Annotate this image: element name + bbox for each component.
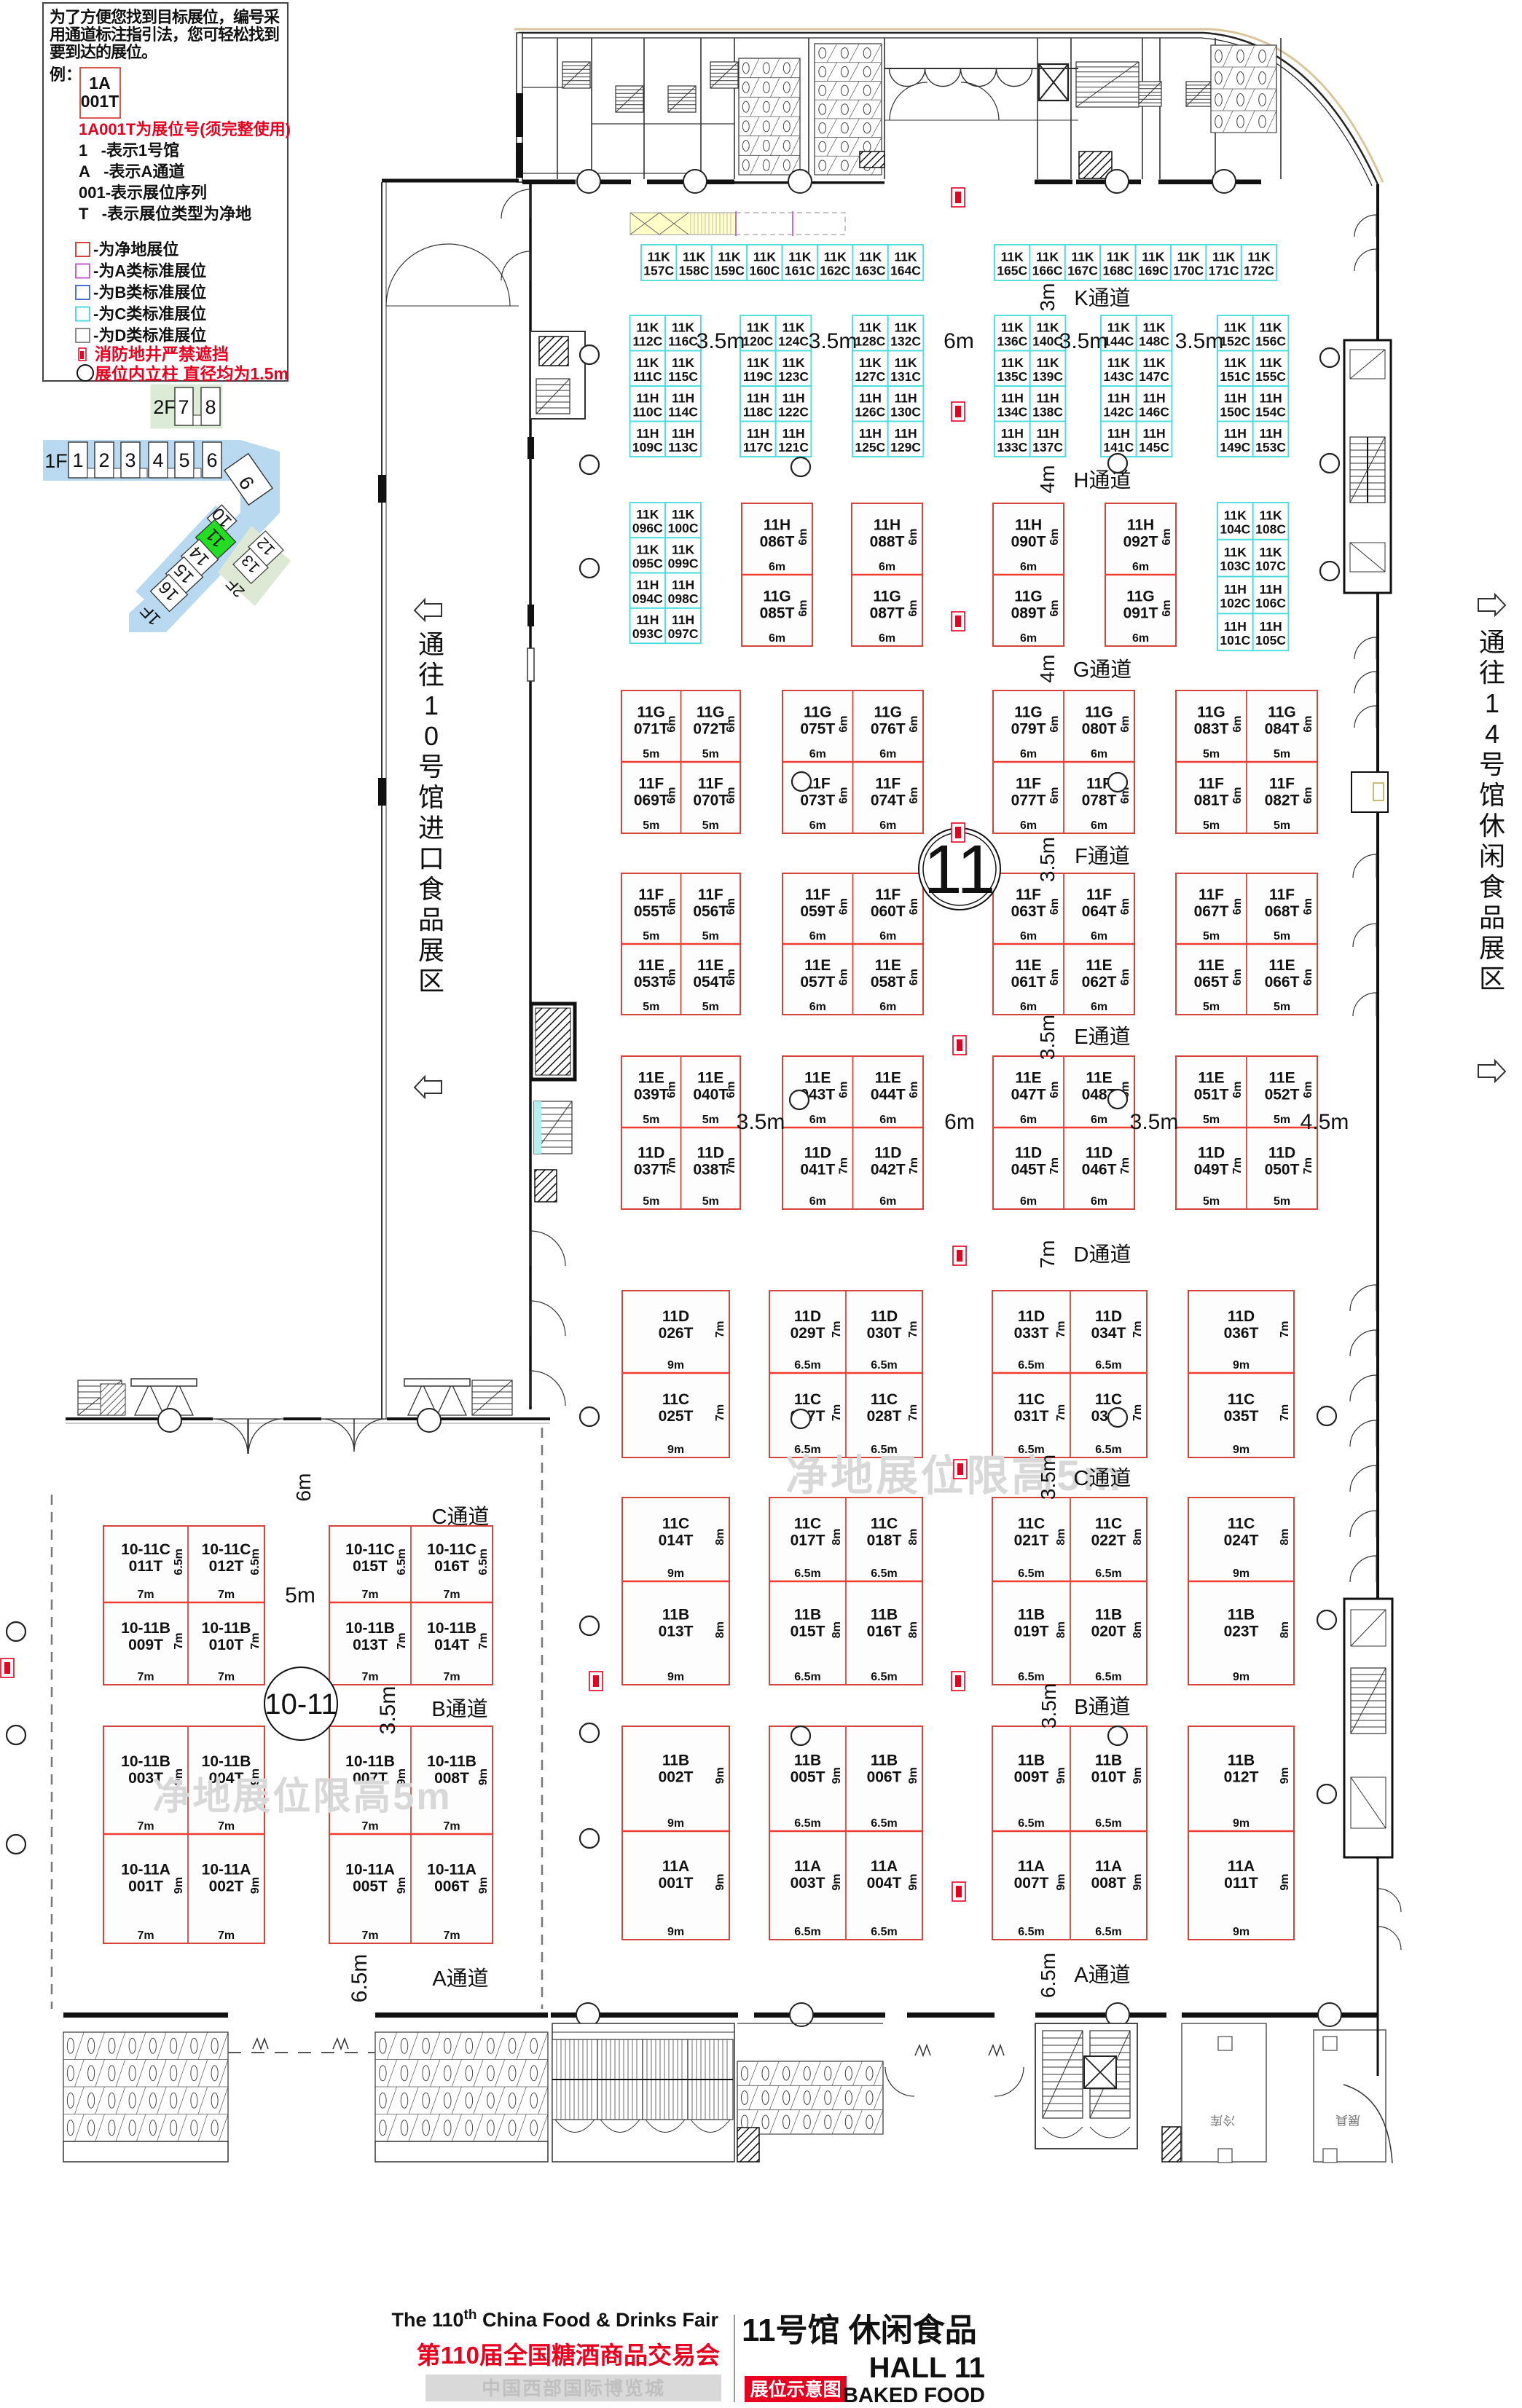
svg-text:11K132C: 11K132C: [890, 320, 921, 348]
svg-text:6m: 6m: [1119, 969, 1131, 985]
svg-text:11H126C: 11H126C: [855, 390, 885, 419]
svg-text:6m: 6m: [879, 930, 896, 943]
svg-text:7m: 7m: [907, 1404, 919, 1421]
svg-text:5m: 5m: [702, 748, 719, 760]
svg-text:11E066T: 11E066T: [1265, 957, 1300, 991]
svg-text:6m: 6m: [908, 715, 920, 732]
svg-text:11F082T: 11F082T: [1265, 775, 1300, 808]
svg-text:11K143C: 11K143C: [1103, 355, 1134, 384]
svg-text:6m: 6m: [1091, 748, 1107, 760]
svg-text:6m: 6m: [1048, 969, 1061, 985]
svg-text:11D036T: 11D036T: [1224, 1308, 1259, 1342]
svg-text:6m: 6m: [908, 898, 920, 915]
svg-text:-为D类标准展位: -为D类标准展位: [93, 326, 206, 345]
svg-text:10-11C015T: 10-11C015T: [345, 1541, 395, 1575]
svg-text:7m: 7m: [838, 1157, 850, 1174]
svg-text:5m: 5m: [643, 1001, 659, 1013]
svg-text:11F063T: 11F063T: [1011, 886, 1046, 920]
svg-text:5m: 5m: [1203, 819, 1220, 832]
svg-text:6m: 6m: [879, 561, 895, 573]
svg-text:11K111C: 11K111C: [633, 355, 662, 384]
svg-text:11K103C: 11K103C: [1220, 545, 1250, 573]
svg-text:11E062T: 11E062T: [1082, 957, 1117, 991]
svg-text:11K123C: 11K123C: [778, 355, 809, 384]
svg-text:7m: 7m: [396, 1633, 408, 1650]
svg-text:6m: 6m: [1048, 1081, 1061, 1098]
svg-text:7m: 7m: [1279, 1321, 1291, 1338]
svg-text:11D034T: 11D034T: [1091, 1308, 1126, 1342]
svg-text:6m: 6m: [1161, 528, 1173, 545]
svg-text:11K163C: 11K163C: [855, 250, 886, 278]
svg-text:5m: 5m: [1274, 748, 1290, 760]
svg-text:11K158C: 11K158C: [679, 250, 710, 278]
svg-text:6.5m: 6.5m: [871, 1567, 897, 1580]
svg-text:10-11A006T: 10-11A006T: [427, 1862, 476, 1895]
svg-text:11B010T: 11B010T: [1091, 1752, 1126, 1785]
svg-text:5m: 5m: [1274, 1001, 1290, 1013]
svg-text:4m: 4m: [1036, 655, 1059, 683]
svg-text:11K136C: 11K136C: [997, 320, 1027, 348]
svg-text:10-11C012T: 10-11C012T: [202, 1541, 251, 1575]
svg-text:9m: 9m: [396, 1877, 408, 1894]
svg-text:11H130C: 11H130C: [890, 390, 921, 419]
svg-text:6: 6: [206, 449, 217, 471]
svg-text:7m: 7m: [1131, 1321, 1144, 1338]
svg-text:-为A类标准展位: -为A类标准展位: [93, 262, 206, 280]
svg-text:6.5m: 6.5m: [1018, 1817, 1044, 1830]
svg-text:11C022T: 11C022T: [1091, 1516, 1126, 1549]
svg-text:6m: 6m: [1091, 1001, 1107, 1013]
svg-text:6m: 6m: [1020, 1195, 1037, 1208]
svg-text:11H088T: 11H088T: [870, 516, 905, 550]
svg-text:9m: 9m: [1279, 1767, 1291, 1784]
svg-text:6m: 6m: [908, 1081, 920, 1098]
svg-text:3.5m: 3.5m: [809, 329, 858, 353]
svg-text:6m: 6m: [1048, 715, 1061, 732]
svg-text:11H098C: 11H098C: [668, 578, 699, 606]
svg-text:7m: 7m: [218, 1671, 235, 1683]
svg-text:4m: 4m: [1036, 465, 1059, 494]
svg-text:5m: 5m: [702, 930, 719, 943]
svg-text:9m: 9m: [477, 1768, 490, 1785]
svg-text:9m: 9m: [1233, 1671, 1250, 1683]
svg-text:6m: 6m: [907, 599, 919, 616]
svg-text:11F055T: 11F055T: [634, 886, 669, 920]
svg-text:5m: 5m: [643, 930, 659, 943]
svg-text:11K161C: 11K161C: [785, 250, 815, 278]
svg-text:C通道: C通道: [432, 1505, 490, 1529]
svg-text:6m: 6m: [666, 787, 678, 803]
svg-text:6.5m: 6.5m: [396, 1549, 408, 1575]
svg-text:11K165C: 11K165C: [997, 250, 1027, 278]
svg-text:11H137C: 11H137C: [1032, 426, 1063, 455]
svg-text:11H092T: 11H092T: [1123, 516, 1158, 550]
svg-text:7m: 7m: [1048, 1157, 1061, 1174]
svg-text:K通道: K通道: [1074, 286, 1130, 310]
svg-text:7m: 7m: [477, 1633, 490, 1650]
svg-text:11B005T: 11B005T: [791, 1752, 825, 1785]
svg-text:7m: 7m: [1279, 1404, 1291, 1421]
svg-text:7m: 7m: [714, 1321, 726, 1338]
svg-text:7m: 7m: [443, 1671, 460, 1683]
svg-text:中国西部国际博览城: 中国西部国际博览城: [482, 2377, 665, 2399]
svg-text:9m: 9m: [714, 1767, 726, 1784]
svg-text:11A004T: 11A004T: [867, 1858, 902, 1892]
svg-text:11K131C: 11K131C: [890, 355, 921, 384]
svg-text:6m: 6m: [1302, 1081, 1314, 1098]
svg-text:11A001T: 11A001T: [659, 1858, 694, 1892]
svg-text:11K157C: 11K157C: [643, 250, 674, 278]
svg-text:6m: 6m: [1302, 715, 1314, 732]
svg-text:5m: 5m: [643, 1195, 659, 1208]
svg-text:6m: 6m: [907, 528, 919, 545]
svg-text:C通道: C通道: [1074, 1466, 1131, 1490]
svg-text:11H138C: 11H138C: [1032, 390, 1063, 419]
svg-text:9m: 9m: [1233, 1926, 1250, 1938]
svg-text:11D026T: 11D026T: [659, 1308, 694, 1342]
svg-text:11B016T: 11B016T: [867, 1607, 902, 1640]
svg-text:11D042T: 11D042T: [871, 1144, 906, 1178]
svg-text:11K099C: 11K099C: [668, 542, 699, 570]
svg-text:11K167C: 11K167C: [1067, 250, 1098, 278]
svg-text:11B020T: 11B020T: [1091, 1607, 1126, 1640]
svg-text:4.5m: 4.5m: [1301, 1110, 1349, 1134]
svg-text:11K168C: 11K168C: [1102, 250, 1133, 278]
svg-text:6.5m: 6.5m: [1095, 1359, 1121, 1372]
svg-text:3.5m: 3.5m: [376, 1686, 400, 1735]
svg-text:6m: 6m: [1161, 599, 1173, 616]
svg-text:11E044T: 11E044T: [871, 1069, 906, 1103]
svg-text:11E065T: 11E065T: [1194, 957, 1229, 991]
svg-text:11H086T: 11H086T: [760, 516, 795, 550]
svg-text:11D038T: 11D038T: [693, 1144, 728, 1178]
svg-text:6.5m: 6.5m: [1095, 1926, 1121, 1938]
svg-text:11C021T: 11C021T: [1014, 1516, 1049, 1549]
svg-text:7m: 7m: [249, 1633, 262, 1650]
svg-text:5m: 5m: [702, 1195, 719, 1208]
svg-text:9m: 9m: [667, 1671, 684, 1683]
svg-text:5m: 5m: [1203, 1195, 1220, 1208]
svg-text:11K139C: 11K139C: [1032, 355, 1063, 384]
svg-text:6m: 6m: [879, 748, 896, 760]
svg-text:11H090T: 11H090T: [1011, 516, 1046, 550]
svg-text:5m: 5m: [1203, 930, 1220, 943]
svg-text:11E053T: 11E053T: [634, 957, 669, 991]
svg-text:11H133C: 11H133C: [997, 426, 1027, 455]
svg-text:11A008T: 11A008T: [1091, 1858, 1126, 1892]
svg-text:5m: 5m: [1203, 1001, 1220, 1013]
svg-text:6m: 6m: [1020, 930, 1037, 943]
svg-text:9m: 9m: [667, 1926, 684, 1938]
svg-text:11E047T: 11E047T: [1011, 1069, 1046, 1103]
svg-text:3.5m: 3.5m: [1036, 1015, 1059, 1060]
svg-text:6m: 6m: [666, 898, 678, 915]
svg-text:11H134C: 11H134C: [997, 390, 1027, 419]
svg-text:6m: 6m: [838, 969, 850, 985]
svg-text:7m: 7m: [725, 1157, 737, 1174]
svg-text:6.5m: 6.5m: [794, 1671, 820, 1683]
svg-text:11K164C: 11K164C: [890, 250, 921, 278]
svg-text:3m: 3m: [1036, 283, 1059, 312]
svg-text:-为C类标准展位: -为C类标准展位: [93, 305, 206, 323]
svg-text:6m: 6m: [809, 1001, 826, 1013]
svg-text:7m: 7m: [137, 1820, 154, 1833]
svg-text:11D030T: 11D030T: [867, 1308, 902, 1342]
svg-text:11H106C: 11H106C: [1255, 582, 1286, 610]
svg-text:6m: 6m: [1020, 632, 1037, 645]
svg-text:3.5m: 3.5m: [697, 329, 745, 353]
svg-text:11H110C: 11H110C: [632, 390, 662, 419]
svg-text:11D050T: 11D050T: [1265, 1144, 1300, 1178]
svg-text:9m: 9m: [1233, 1567, 1250, 1580]
svg-text:展具: 展具: [1335, 2113, 1360, 2127]
svg-text:11F067T: 11F067T: [1194, 886, 1229, 920]
svg-text:11H154C: 11H154C: [1255, 390, 1286, 419]
svg-text:7m: 7m: [908, 1157, 920, 1174]
svg-text:6m: 6m: [1091, 1195, 1107, 1208]
svg-text:1A001T为展位号(须完整使用): 1A001T为展位号(须完整使用): [79, 120, 291, 138]
svg-text:消防地井严禁遮挡: 消防地井严禁遮挡: [95, 345, 229, 363]
svg-text:3.5m: 3.5m: [1175, 329, 1224, 353]
svg-text:6m: 6m: [725, 715, 737, 732]
svg-text:6m: 6m: [1119, 715, 1131, 732]
svg-text:10-11: 10-11: [264, 1688, 337, 1720]
svg-text:6m: 6m: [1119, 898, 1131, 915]
svg-text:11E057T: 11E057T: [800, 957, 835, 991]
svg-text:7m: 7m: [443, 1589, 460, 1601]
svg-text:10-11A005T: 10-11A005T: [345, 1862, 395, 1895]
svg-text:11K148C: 11K148C: [1139, 320, 1169, 348]
svg-text:11B002T: 11B002T: [659, 1752, 694, 1785]
svg-text:11G072T: 11G072T: [693, 704, 728, 737]
svg-text:11K171C: 11K171C: [1209, 250, 1239, 278]
svg-text:6m: 6m: [879, 1195, 896, 1208]
svg-text:-为B类标准展位: -为B类标准展位: [93, 283, 206, 302]
svg-text:6.5m: 6.5m: [871, 1817, 897, 1830]
svg-text:9m: 9m: [249, 1877, 262, 1894]
svg-text:6.5m: 6.5m: [1018, 1359, 1044, 1372]
svg-text:6m: 6m: [1231, 787, 1244, 803]
svg-text:6.5m: 6.5m: [1018, 1926, 1044, 1938]
svg-text:6m: 6m: [1048, 898, 1061, 915]
svg-text:5m: 5m: [1203, 1114, 1220, 1126]
svg-text:6m: 6m: [1091, 819, 1107, 832]
svg-text:6.5m: 6.5m: [1095, 1671, 1121, 1683]
svg-text:11H101C: 11H101C: [1220, 619, 1250, 648]
svg-text:F通道: F通道: [1075, 844, 1130, 868]
svg-text:9m: 9m: [831, 1767, 843, 1784]
svg-text:8m: 8m: [907, 1528, 919, 1545]
svg-text:9m: 9m: [907, 1767, 919, 1784]
svg-text:6.5m: 6.5m: [1037, 1953, 1059, 1998]
svg-text:9m: 9m: [1279, 1873, 1291, 1890]
svg-text:11B015T: 11B015T: [791, 1607, 825, 1640]
svg-text:6m: 6m: [809, 748, 826, 760]
svg-text:6.5m: 6.5m: [348, 1954, 372, 2003]
svg-text:6m: 6m: [879, 632, 895, 645]
svg-text:11F059T: 11F059T: [800, 886, 835, 920]
svg-text:6m: 6m: [725, 969, 737, 985]
svg-text:7m: 7m: [1055, 1404, 1067, 1421]
svg-text:11H125C: 11H125C: [855, 426, 885, 455]
svg-text:11K112C: 11K112C: [632, 320, 662, 348]
svg-text:7m: 7m: [137, 1671, 154, 1683]
svg-text:6m: 6m: [666, 1081, 678, 1098]
svg-text:6m: 6m: [908, 787, 920, 803]
svg-text:11K104C: 11K104C: [1220, 508, 1250, 536]
svg-text:11K155C: 11K155C: [1255, 355, 1286, 384]
svg-text:通往10号馆进口食品展区: 通往10号馆进口食品展区: [418, 629, 444, 996]
svg-text:11G087T: 11G087T: [870, 588, 905, 621]
svg-text:6.5m: 6.5m: [173, 1549, 185, 1575]
svg-text:11G084T: 11G084T: [1265, 704, 1300, 737]
svg-text:11K127C: 11K127C: [855, 355, 885, 384]
svg-text:11E039T: 11E039T: [634, 1069, 669, 1103]
svg-text:11H121C: 11H121C: [778, 426, 809, 455]
svg-text:11K151C: 11K151C: [1220, 355, 1250, 384]
svg-text:11H150C: 11H150C: [1220, 390, 1250, 419]
svg-text:11E058T: 11E058T: [871, 957, 906, 991]
svg-text:11H118C: 11H118C: [743, 390, 773, 419]
svg-text:11D033T: 11D033T: [1014, 1308, 1049, 1342]
svg-text:9m: 9m: [907, 1873, 919, 1890]
svg-text:HALL 11: HALL 11: [869, 2352, 985, 2384]
svg-text:5m: 5m: [1274, 819, 1290, 832]
svg-text:11K160C: 11K160C: [749, 250, 780, 278]
svg-text:6.5m: 6.5m: [794, 1567, 820, 1580]
svg-text:净地展位限高5m: 净地展位限高5m: [152, 1776, 452, 1818]
svg-text:9m: 9m: [1055, 1873, 1067, 1890]
svg-text:9m: 9m: [667, 1817, 684, 1830]
svg-text:11C017T: 11C017T: [791, 1516, 825, 1549]
svg-text:7m: 7m: [1036, 1240, 1059, 1269]
svg-text:11B009T: 11B009T: [1014, 1752, 1049, 1785]
svg-text:5m: 5m: [643, 819, 659, 832]
svg-text:6m: 6m: [1020, 748, 1037, 760]
svg-text:11H097C: 11H097C: [668, 613, 699, 641]
svg-text:11H122C: 11H122C: [778, 390, 809, 419]
svg-text:11H153C: 11H153C: [1255, 426, 1286, 455]
svg-text:11G089T: 11G089T: [1011, 588, 1046, 621]
svg-text:1: 1: [72, 449, 83, 471]
svg-text:6m: 6m: [292, 1473, 315, 1502]
svg-text:11C028T: 11C028T: [867, 1391, 902, 1425]
svg-text:11K135C: 11K135C: [997, 355, 1027, 384]
svg-text:6.5m: 6.5m: [477, 1549, 490, 1575]
svg-text:6m: 6m: [838, 715, 850, 732]
svg-text:11B012T: 11B012T: [1224, 1752, 1259, 1785]
svg-text:7m: 7m: [218, 1820, 235, 1833]
svg-text:11K159C: 11K159C: [714, 250, 745, 278]
svg-text:11C031T: 11C031T: [1014, 1391, 1049, 1425]
svg-text:9m: 9m: [1055, 1767, 1067, 1784]
svg-text:11K144C: 11K144C: [1103, 320, 1134, 348]
svg-text:11F068T: 11F068T: [1265, 886, 1300, 920]
svg-text:11D049T: 11D049T: [1194, 1144, 1229, 1178]
svg-text:11E052T: 11E052T: [1265, 1069, 1300, 1103]
svg-text:11G091T: 11G091T: [1123, 588, 1158, 621]
svg-text:11K124C: 11K124C: [778, 320, 809, 348]
svg-text:BAKED FOOD: BAKED FOOD: [843, 2384, 985, 2407]
svg-text:8m: 8m: [714, 1621, 726, 1638]
svg-text:10-11B014T: 10-11B014T: [427, 1620, 476, 1653]
svg-text:6m: 6m: [666, 969, 678, 985]
svg-text:9m: 9m: [667, 1359, 684, 1372]
svg-text:11K115C: 11K115C: [668, 355, 698, 384]
svg-text:7m: 7m: [666, 1157, 678, 1174]
svg-text:3.5m: 3.5m: [737, 1110, 785, 1134]
svg-text:7m: 7m: [218, 1589, 235, 1601]
svg-text:10-11B013T: 10-11B013T: [345, 1620, 395, 1653]
svg-text:11F064T: 11F064T: [1082, 886, 1117, 920]
svg-text:11G079T: 11G079T: [1011, 704, 1046, 737]
svg-text:10-11B010T: 10-11B010T: [202, 1620, 251, 1653]
svg-text:11K108C: 11K108C: [1255, 508, 1286, 536]
svg-text:11H141C: 11H141C: [1103, 426, 1134, 455]
svg-text:6.5m: 6.5m: [1018, 1671, 1044, 1683]
svg-text:8m: 8m: [1055, 1528, 1067, 1545]
svg-text:5: 5: [179, 449, 189, 471]
svg-text:11E040T: 11E040T: [693, 1069, 728, 1103]
svg-text:8m: 8m: [831, 1621, 843, 1638]
svg-text:1F: 1F: [44, 450, 68, 472]
svg-text:7m: 7m: [137, 1929, 154, 1942]
svg-text:11F056T: 11F056T: [693, 886, 728, 920]
svg-text:6m: 6m: [797, 528, 809, 545]
svg-text:11F077T: 11F077T: [1011, 775, 1046, 808]
svg-text:5m: 5m: [702, 1114, 719, 1126]
svg-text:6m: 6m: [1091, 1114, 1107, 1126]
svg-text:5m: 5m: [1274, 1195, 1290, 1208]
svg-text:11F060T: 11F060T: [871, 886, 906, 920]
svg-text:7m: 7m: [443, 1820, 460, 1833]
svg-text:6m: 6m: [809, 1114, 826, 1126]
svg-text:6.5m: 6.5m: [794, 1359, 820, 1372]
svg-text:11K096C: 11K096C: [632, 507, 663, 535]
svg-text:9m: 9m: [714, 1873, 726, 1890]
svg-text:11H109C: 11H109C: [632, 426, 663, 455]
svg-text:11E051T: 11E051T: [1194, 1069, 1229, 1103]
svg-text:7m: 7m: [361, 1929, 378, 1942]
svg-text:B通道: B通道: [431, 1697, 487, 1721]
svg-text:6m: 6m: [797, 599, 809, 616]
svg-text:5m: 5m: [643, 748, 659, 760]
svg-text:11H142C: 11H142C: [1103, 390, 1134, 419]
svg-text:11C018T: 11C018T: [867, 1516, 902, 1549]
svg-text:11B019T: 11B019T: [1014, 1607, 1049, 1640]
svg-text:11H117C: 11H117C: [743, 426, 773, 455]
svg-text:11B006T: 11B006T: [867, 1752, 902, 1785]
svg-text:8m: 8m: [907, 1621, 919, 1638]
svg-text:11G083T: 11G083T: [1194, 704, 1229, 737]
svg-text:6m: 6m: [1020, 1114, 1037, 1126]
svg-text:D通道: D通道: [1074, 1243, 1131, 1267]
svg-text:9m: 9m: [667, 1567, 684, 1580]
svg-text:11H105C: 11H105C: [1255, 619, 1286, 648]
svg-text:11C014T: 11C014T: [659, 1516, 694, 1549]
svg-text:9m: 9m: [831, 1873, 843, 1890]
svg-text:11H129C: 11H129C: [890, 426, 921, 455]
svg-text:11B013T: 11B013T: [659, 1607, 694, 1640]
svg-text:8m: 8m: [1279, 1621, 1291, 1638]
svg-text:8m: 8m: [1055, 1621, 1067, 1638]
svg-text:6m: 6m: [1091, 930, 1107, 943]
svg-text:7m: 7m: [714, 1404, 726, 1421]
svg-text:11H102C: 11H102C: [1220, 582, 1250, 610]
svg-text:5m: 5m: [702, 1001, 719, 1013]
svg-text:11A003T: 11A003T: [791, 1858, 825, 1892]
svg-text:8: 8: [205, 396, 216, 418]
